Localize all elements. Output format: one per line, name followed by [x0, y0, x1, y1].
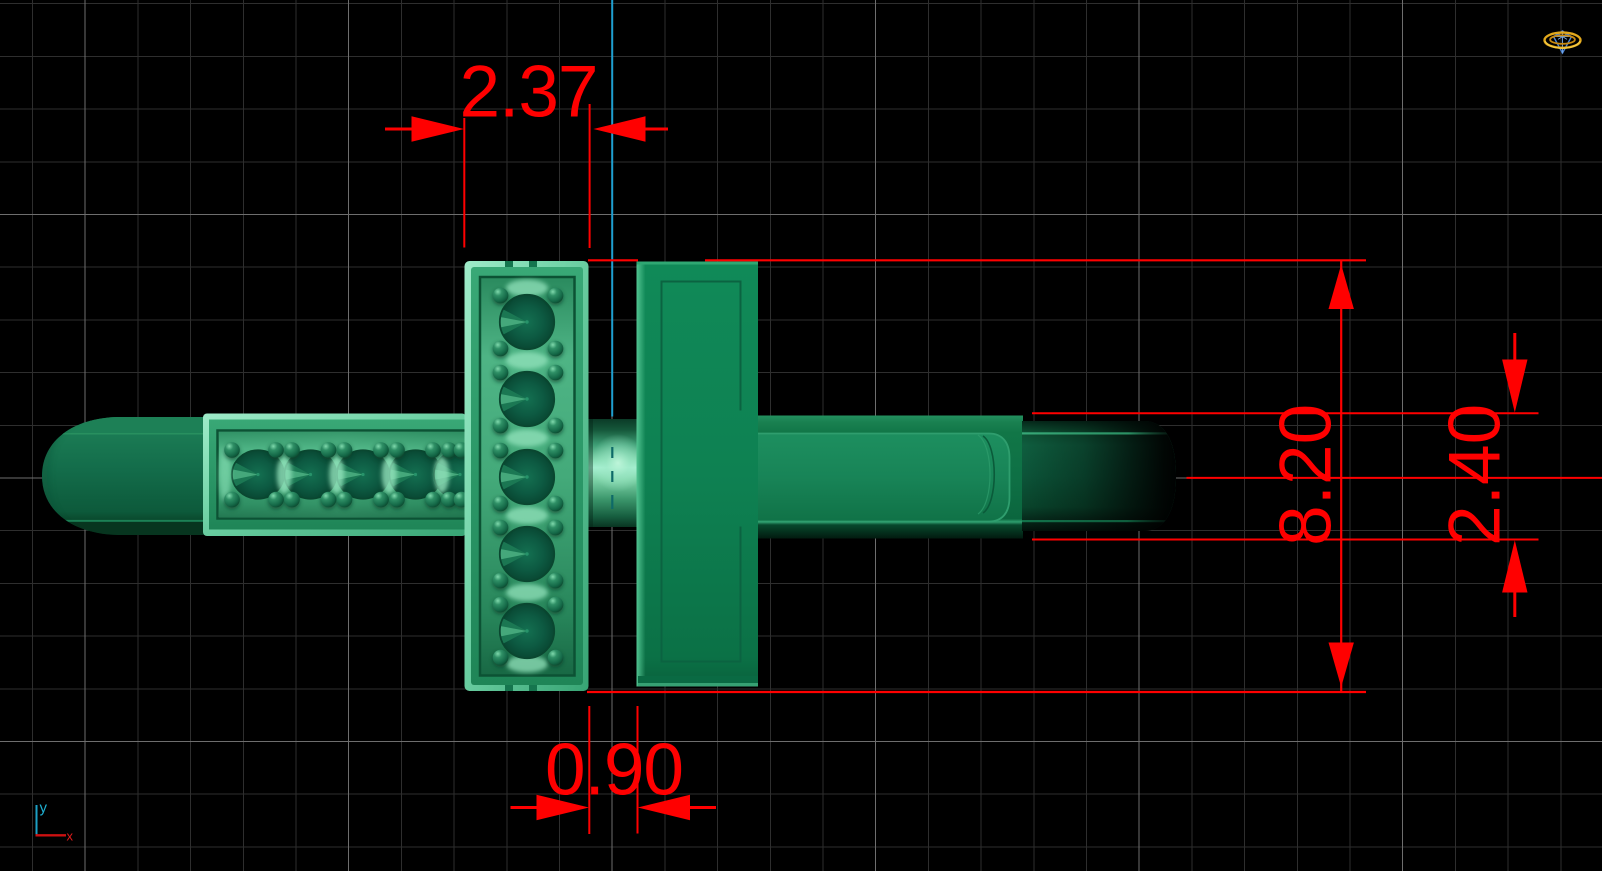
svg-text:2.40: 2.40 [1435, 404, 1516, 546]
svg-text:x: x [67, 829, 74, 844]
svg-text:y: y [40, 800, 48, 817]
svg-text:2.37: 2.37 [459, 52, 597, 133]
svg-text:0.90: 0.90 [545, 730, 683, 811]
svg-text:8.20: 8.20 [1266, 404, 1347, 546]
